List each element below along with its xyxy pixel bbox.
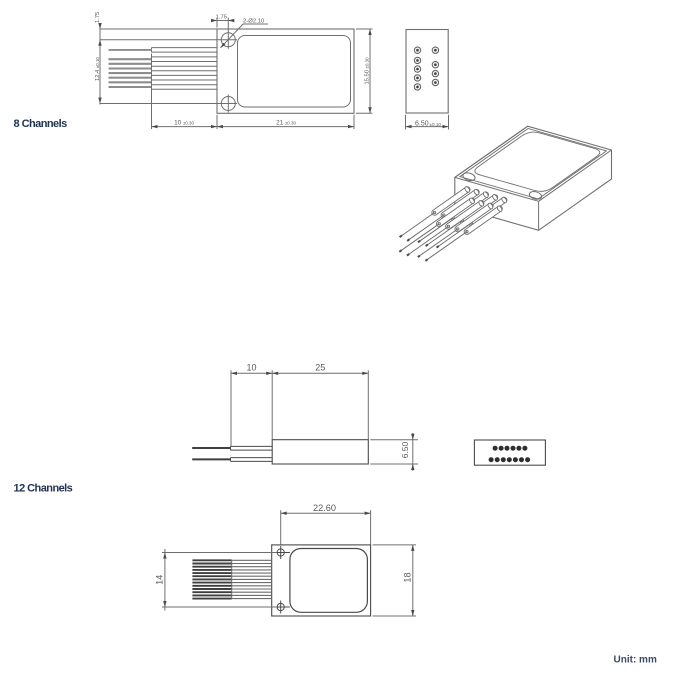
svg-text:±0.10: ±0.10 [430, 122, 442, 127]
svg-text:25: 25 [315, 363, 325, 373]
svg-text:Unit: mm: Unit: mm [614, 655, 657, 666]
svg-text:10: 10 [246, 363, 256, 373]
svg-text:22.60: 22.60 [313, 503, 336, 513]
svg-text:8 Channels: 8 Channels [14, 118, 68, 130]
svg-text:10 ±0.30: 10 ±0.30 [174, 119, 194, 126]
svg-text:6.50: 6.50 [415, 121, 429, 128]
svg-text:1.75: 1.75 [216, 14, 227, 20]
svg-text:18: 18 [402, 572, 412, 582]
svg-text:14: 14 [155, 575, 165, 585]
svg-text:21 ±0.30: 21 ±0.30 [276, 119, 296, 126]
svg-text:12 Channels: 12 Channels [14, 483, 73, 495]
svg-text:1.75: 1.75 [95, 12, 101, 23]
svg-text:6.50: 6.50 [400, 441, 410, 458]
